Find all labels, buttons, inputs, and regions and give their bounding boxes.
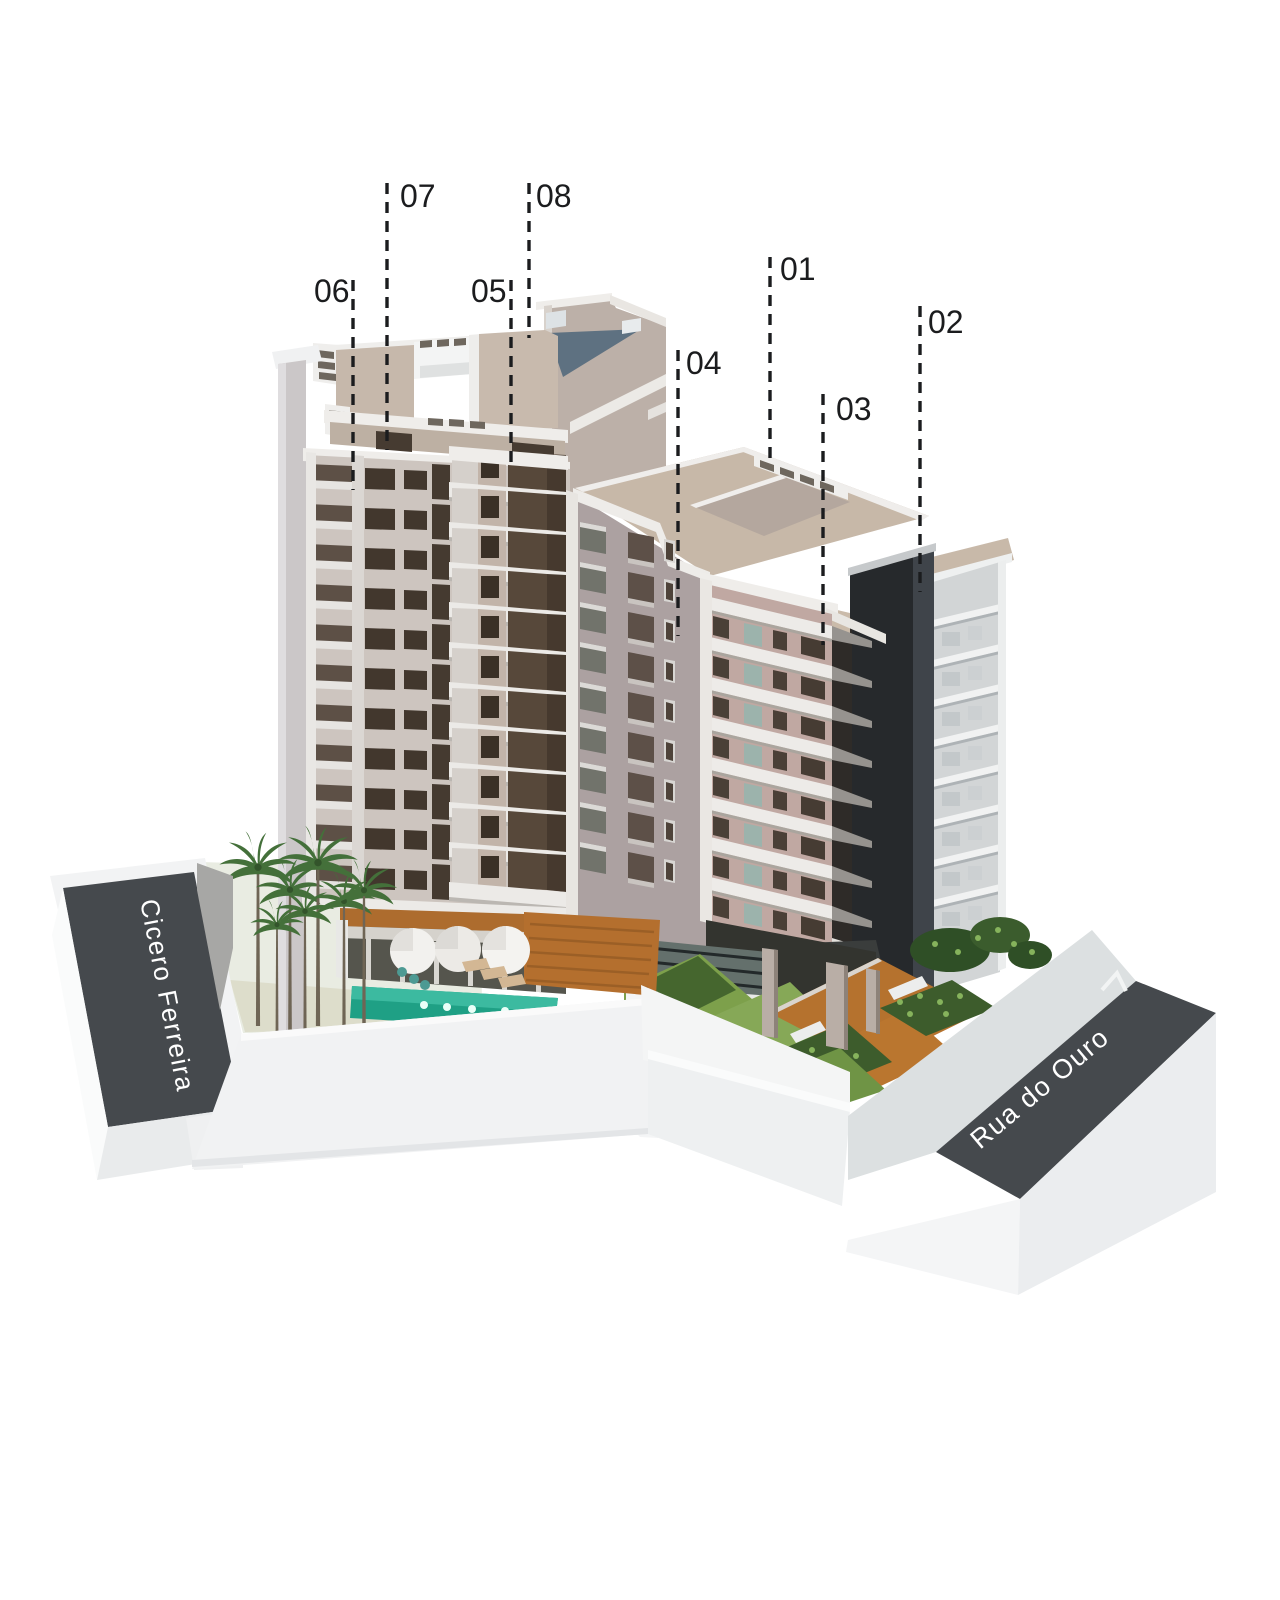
svg-text:08: 08 [536, 178, 572, 214]
svg-text:03: 03 [836, 391, 872, 427]
svg-text:05: 05 [471, 273, 507, 309]
svg-text:07: 07 [400, 178, 436, 214]
svg-text:04: 04 [686, 345, 722, 381]
svg-text:02: 02 [928, 304, 964, 340]
svg-text:06: 06 [314, 273, 350, 309]
svg-text:01: 01 [780, 251, 816, 287]
